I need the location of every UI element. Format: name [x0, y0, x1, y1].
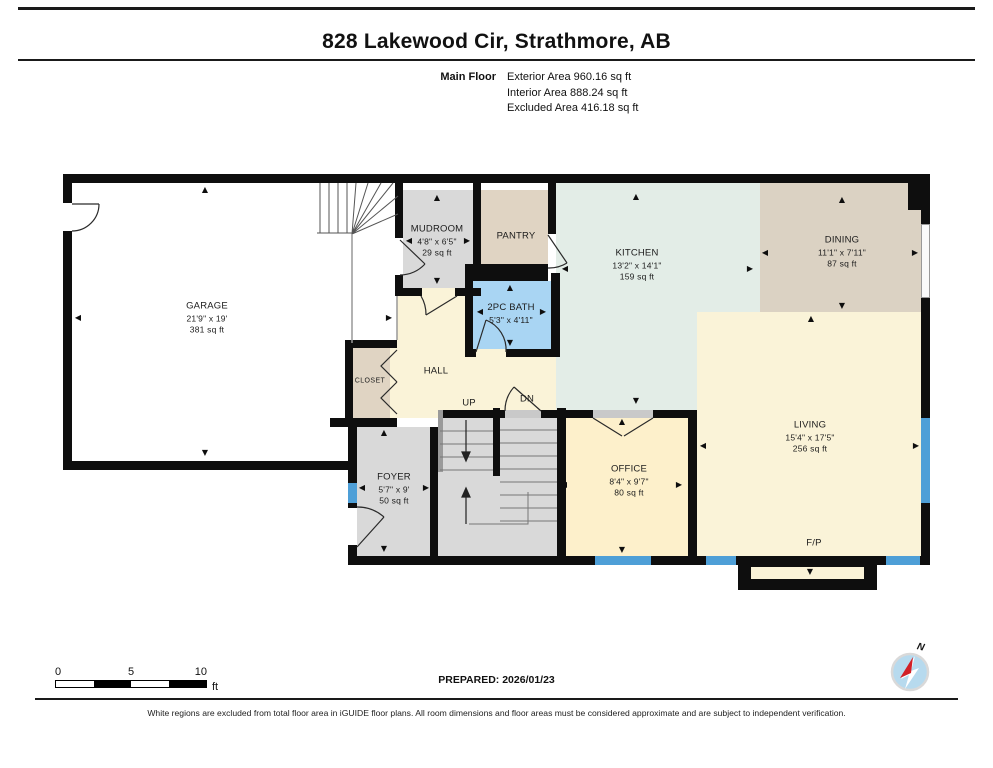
dim-arrow-left-icon: ◀ — [477, 308, 483, 316]
office-window — [595, 556, 651, 565]
wall-mudroom-pantry — [473, 183, 481, 264]
dim-arrow-down-icon: ▼ — [507, 339, 513, 347]
floorplan: GARAGE 21'9" x 19' 381 sq ft MUDROOM 4'8… — [0, 0, 993, 768]
room-name: HALL — [424, 366, 449, 379]
living-window-bottom-right — [886, 556, 920, 565]
bottom-border-rule — [35, 698, 958, 700]
wall-right-mid — [921, 298, 930, 418]
room-area: 159 sq ft — [612, 271, 661, 282]
dim-arrow-right-icon: ▶ — [747, 265, 753, 273]
dim-arrow-left-icon: ◀ — [700, 442, 706, 450]
wall-foyer-left-stub — [348, 545, 357, 556]
wall-foyer-left-mid — [348, 503, 357, 508]
wall-garage-bottom — [63, 461, 352, 470]
wall-left-upper — [63, 183, 72, 203]
room-name: DN — [520, 394, 534, 407]
dim-arrow-right-icon: ▶ — [912, 249, 918, 257]
dim-arrow-down-icon: ▼ — [381, 545, 387, 553]
dim-arrow-right-icon: ▶ — [676, 481, 682, 489]
bath-label: 2PC BATH 5'3" x 4'11" — [487, 302, 534, 326]
wall-foyer-left-upper — [348, 427, 357, 483]
dim-arrow-right-icon: ▶ — [913, 442, 919, 450]
dining-label: DINING 11'1" x 7'11" 87 sq ft — [818, 235, 866, 270]
dim-arrow-down-icon: ▼ — [633, 397, 639, 405]
wall-pantry-bottom-bath-top — [465, 264, 548, 281]
compass-icon — [888, 645, 936, 693]
mudroom-label: MUDROOM 4'8" x 6'5" 29 sq ft — [411, 224, 464, 259]
wall-top — [63, 174, 930, 183]
dim-arrow-up-icon: ▲ — [434, 194, 440, 202]
room-dims: 15'4" x 17'5" — [785, 432, 834, 443]
prepared-date: PREPARED: 2026/01/23 — [0, 674, 993, 686]
dim-arrow-left-icon: ◀ — [561, 481, 567, 489]
room-name: KITCHEN — [612, 248, 661, 261]
room-name: MUDROOM — [411, 224, 464, 237]
dim-arrow-left-icon: ◀ — [75, 314, 81, 322]
room-dims: 8'4" x 9'7" — [609, 476, 648, 487]
dim-arrow-down-icon: ▼ — [619, 546, 625, 554]
dim-arrow-up-icon: ▲ — [381, 429, 387, 437]
floorplan-page: 828 Lakewood Cir, Strathmore, AB Main Fl… — [0, 0, 993, 768]
dim-arrow-right-icon: ▶ — [540, 308, 546, 316]
wall-office-right — [688, 410, 697, 556]
wall-foyer-stairs — [430, 427, 438, 556]
room-name: F/P — [806, 538, 821, 551]
wall-bath-right — [551, 273, 560, 357]
room-area: 256 sq ft — [785, 443, 834, 454]
dim-arrow-down-icon: ▼ — [202, 449, 208, 457]
foyer-label: FOYER 5'7" x 9' 50 sq ft — [377, 472, 411, 507]
compass: N — [888, 645, 938, 695]
kitchen-label: KITCHEN 13'2" x 14'1" 159 sq ft — [612, 248, 661, 283]
room-dims: 13'2" x 14'1" — [612, 260, 661, 271]
room-area: 80 sq ft — [609, 487, 648, 498]
living-window-right — [921, 418, 930, 503]
wall-pantry-right — [548, 183, 556, 234]
closet-label: CLOSET — [355, 376, 385, 385]
dim-arrow-left-icon: ◀ — [406, 237, 412, 245]
dim-arrow-down-icon: ▼ — [839, 302, 845, 310]
wall-closet-bottom — [330, 418, 397, 427]
wall-stairs-top-right — [541, 410, 557, 418]
room-name: UP — [462, 398, 476, 411]
wall-mudroom-left-upper — [395, 183, 403, 238]
dim-arrow-up-icon: ▲ — [507, 284, 513, 292]
room-dims: 4'8" x 6'5" — [411, 236, 464, 247]
room-name: CLOSET — [355, 376, 385, 385]
room-name: PANTRY — [497, 231, 536, 244]
dim-arrow-left-icon: ◀ — [359, 484, 365, 492]
dim-arrow-up-icon: ▲ — [202, 186, 208, 194]
dim-arrow-up-icon: ▲ — [839, 196, 845, 204]
wall-office-top-left — [557, 410, 593, 418]
hall-label: HALL — [424, 366, 449, 379]
pantry-room — [481, 190, 548, 264]
room-name: LIVING — [785, 420, 834, 433]
foyer-window — [348, 483, 357, 503]
wall-closet-top — [345, 340, 397, 348]
office-label: OFFICE 8'4" x 9'7" 80 sq ft — [609, 464, 648, 499]
stair-rail-stub — [438, 410, 443, 472]
room-name: OFFICE — [609, 464, 648, 477]
room-name: 2PC BATH — [487, 302, 534, 315]
room-dims: 5'7" x 9' — [377, 484, 411, 495]
room-name: DINING — [818, 235, 866, 248]
wall-bath-left — [465, 281, 473, 357]
room-dims: 11'1" x 7'11" — [818, 247, 866, 258]
pantry-label: PANTRY — [497, 231, 536, 244]
room-dims: 21'9" x 19' — [186, 313, 228, 324]
wall-stair-flight-divider — [493, 408, 500, 476]
dining-window-right — [921, 224, 930, 298]
dim-arrow-right-icon: ▶ — [386, 314, 392, 322]
wall-closet-left — [345, 343, 353, 427]
wall-mudroom-bottom-left — [395, 288, 422, 296]
fireplace-label: F/P — [806, 538, 821, 551]
wall-bath-bottom-left — [465, 349, 476, 357]
room-dims: 5'3" x 4'11" — [487, 315, 534, 326]
dim-arrow-up-icon: ▲ — [619, 418, 625, 426]
dn-door-sill — [505, 410, 541, 418]
dim-arrow-left-icon: ◀ — [762, 249, 768, 257]
room-area: 29 sq ft — [411, 247, 464, 258]
room-name: FOYER — [377, 472, 411, 485]
dim-arrow-down-icon: ▼ — [434, 277, 440, 285]
wall-left-lower — [63, 231, 72, 470]
room-area: 381 sq ft — [186, 324, 228, 335]
room-area: 50 sq ft — [377, 495, 411, 506]
living-window-bottom-left — [706, 556, 736, 565]
dim-arrow-right-icon: ▶ — [464, 237, 470, 245]
dim-arrow-down-icon: ▼ — [807, 568, 813, 576]
wall-corner-block — [908, 183, 930, 210]
living-label: LIVING 15'4" x 17'5" 256 sq ft — [785, 420, 834, 455]
dim-arrow-up-icon: ▲ — [633, 193, 639, 201]
stairs-up-label: UP — [462, 398, 476, 411]
dim-arrow-right-icon: ▶ — [423, 484, 429, 492]
room-name: GARAGE — [186, 301, 228, 314]
dim-arrow-up-icon: ▲ — [808, 315, 814, 323]
stairs-dn-label: DN — [520, 394, 534, 407]
garage-label: GARAGE 21'9" x 19' 381 sq ft — [186, 301, 228, 336]
room-area: 87 sq ft — [818, 258, 866, 269]
dim-arrow-left-icon: ◀ — [562, 265, 568, 273]
disclaimer-text: White regions are excluded from total fl… — [0, 708, 993, 718]
